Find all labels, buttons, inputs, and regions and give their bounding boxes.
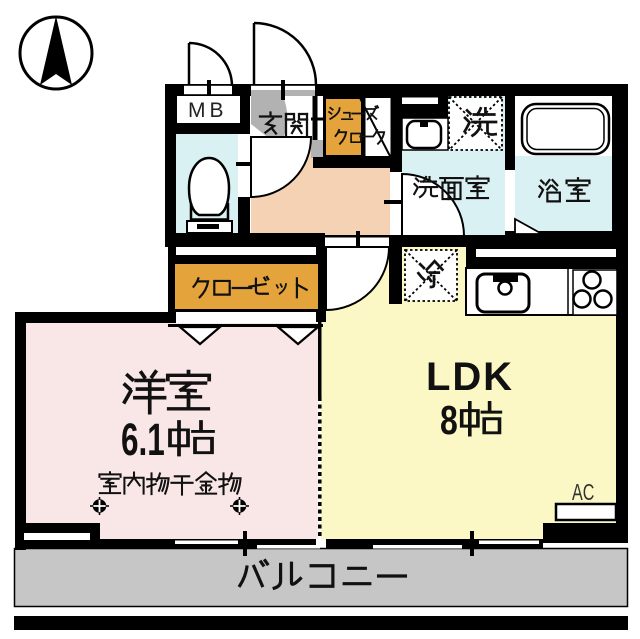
svg-text:6.1: 6.1 bbox=[121, 416, 165, 466]
svg-text:LDK: LDK bbox=[426, 355, 512, 399]
svg-text:AC: AC bbox=[572, 480, 594, 505]
svg-text:MB: MB bbox=[188, 99, 228, 122]
svg-text:8: 8 bbox=[440, 397, 458, 443]
